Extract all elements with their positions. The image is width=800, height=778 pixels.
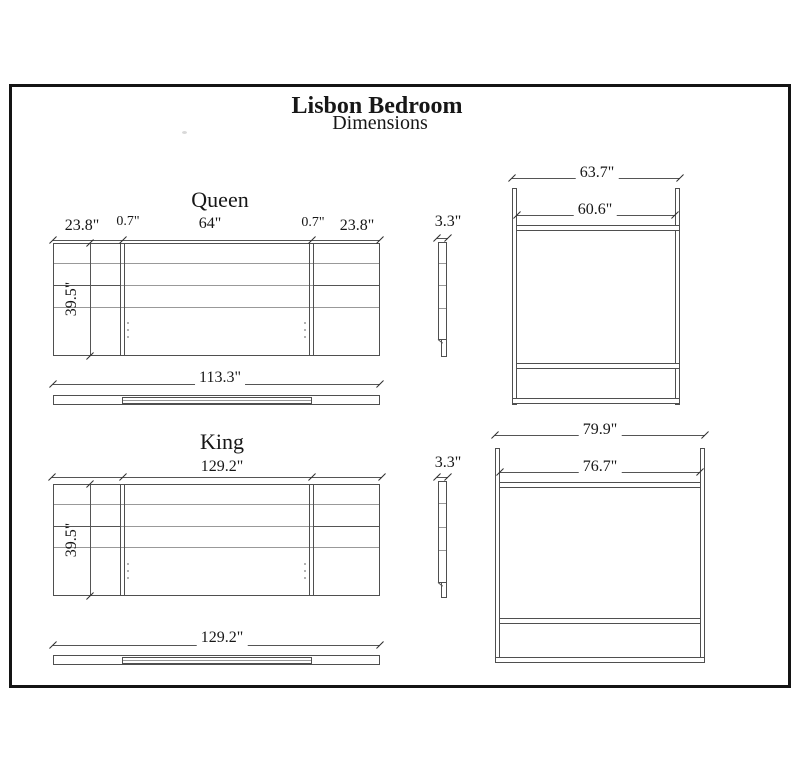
queen-headboard-outline xyxy=(53,243,380,356)
king-side-hline xyxy=(439,527,446,528)
king-headboard-divider-right xyxy=(309,484,314,596)
queen-frame-right-rail xyxy=(675,188,680,405)
dimensions-sheet: Lisbon Bedroom Dimensions Queen 23.8" 0.… xyxy=(0,0,800,778)
hinge-dot xyxy=(127,336,129,338)
queen-rail-length-label: 113.3" xyxy=(195,370,245,386)
king-side-hline xyxy=(439,550,446,551)
king-top-dim-line xyxy=(52,477,382,478)
queen-rail-channel-line xyxy=(123,400,311,401)
king-rail-length-label: 129.2" xyxy=(197,630,248,646)
king-frame-left-rail xyxy=(495,448,500,663)
hinge-dot xyxy=(127,570,129,572)
hinge-dot xyxy=(127,577,129,579)
king-thickness-label: 3.3" xyxy=(431,455,466,471)
king-headboard-hline xyxy=(54,504,379,505)
hinge-dot xyxy=(304,563,306,565)
print-smudge xyxy=(182,131,187,134)
page-subtitle: Dimensions xyxy=(332,113,428,133)
queen-top-dim-line xyxy=(53,240,380,241)
queen-frame-head-cross-rail xyxy=(516,225,680,231)
king-headboard-divider-left xyxy=(120,484,125,596)
drawing-border xyxy=(9,84,791,688)
queen-right-panel-width-label: 23.8" xyxy=(336,218,379,234)
queen-center-width-label: 64" xyxy=(195,216,226,232)
hinge-dot xyxy=(127,322,129,324)
queen-frame-foot-cross-rail xyxy=(516,363,680,369)
king-height-label: 39.5" xyxy=(64,523,80,558)
hinge-dot xyxy=(304,336,306,338)
hinge-dot xyxy=(127,329,129,331)
queen-height-dim-line xyxy=(90,243,91,356)
king-side-hline xyxy=(439,503,446,504)
queen-side-hline xyxy=(439,308,446,309)
king-frame-head-cross-rail xyxy=(499,482,701,488)
king-side-view-outline xyxy=(438,481,447,583)
king-headboard-outline xyxy=(53,484,380,596)
queen-headboard-hline-right xyxy=(314,285,379,286)
queen-side-hline xyxy=(439,285,446,286)
queen-headboard-hline xyxy=(54,263,379,264)
king-headboard-hline-right xyxy=(314,526,379,527)
queen-side-view-outline xyxy=(438,242,447,340)
queen-headboard-divider-right xyxy=(309,243,314,356)
queen-section-title: Queen xyxy=(191,189,248,211)
hinge-dot xyxy=(304,570,306,572)
king-frame-foot-cross-rail xyxy=(499,618,701,624)
king-section-title: King xyxy=(200,431,244,453)
queen-height-label: 39.5" xyxy=(64,282,80,317)
hinge-dot xyxy=(304,322,306,324)
hinge-dot xyxy=(304,577,306,579)
queen-headboard-divider-left xyxy=(120,243,125,356)
king-frame-right-rail xyxy=(700,448,705,663)
king-frame-inner-width-label: 76.7" xyxy=(579,459,622,475)
king-height-dim-line xyxy=(90,484,91,596)
king-frame-outer-width-label: 79.9" xyxy=(579,422,622,438)
hinge-dot xyxy=(127,563,129,565)
queen-frame-foot-board xyxy=(512,398,680,404)
queen-headboard-hline xyxy=(54,307,379,308)
king-total-width-label: 129.2" xyxy=(197,459,248,475)
hinge-dot xyxy=(304,329,306,331)
queen-frame-outer-width-label: 63.7" xyxy=(576,165,619,181)
queen-left-gap-label: 0.7" xyxy=(114,215,141,229)
king-frame-foot-board xyxy=(495,657,705,663)
queen-side-hline xyxy=(439,263,446,264)
king-rail-channel-line xyxy=(123,660,311,661)
queen-thickness-label: 3.3" xyxy=(431,214,466,230)
king-headboard-hline xyxy=(54,547,379,548)
queen-right-gap-label: 0.7" xyxy=(299,216,326,230)
queen-frame-inner-width-label: 60.6" xyxy=(574,202,617,218)
queen-left-panel-width-label: 23.8" xyxy=(61,218,104,234)
queen-frame-left-rail xyxy=(512,188,517,405)
